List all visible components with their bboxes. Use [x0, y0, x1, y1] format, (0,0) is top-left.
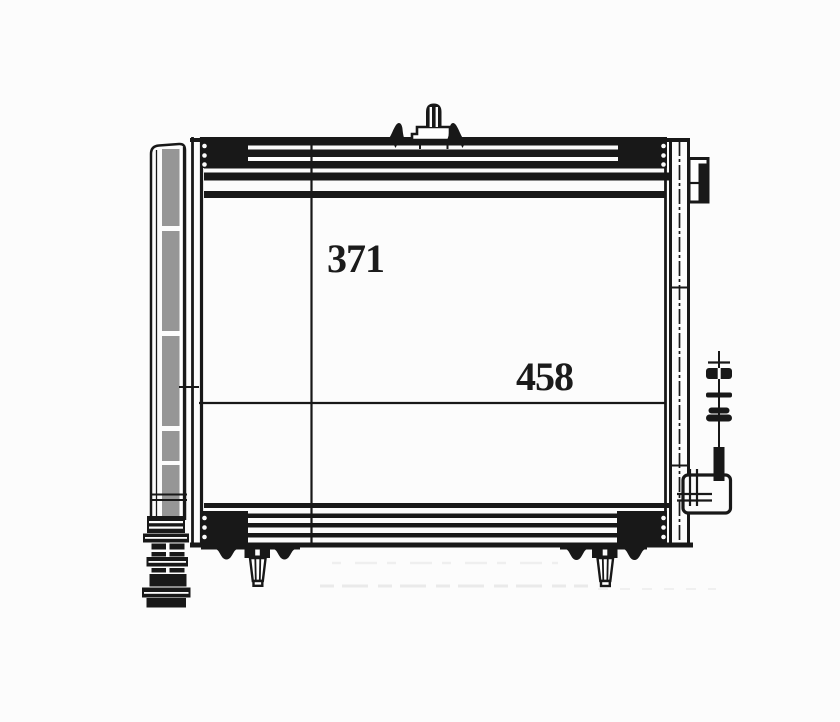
- condenser-drawing-page: 371 458: [0, 0, 840, 722]
- mount-screw-assembly: [706, 351, 732, 481]
- top-header-tank: [190, 137, 690, 198]
- dimension-label-width: 458: [516, 354, 573, 399]
- side-frames: [193, 137, 666, 547]
- bottom-header-tank: [190, 503, 693, 545]
- condenser-technical-drawing: 371 458: [0, 0, 840, 722]
- dimension-lines: [199, 140, 666, 546]
- artifact-streaks: [320, 563, 716, 589]
- receiver-bottom-fitting: [142, 516, 191, 608]
- mounting-pins: [201, 543, 647, 586]
- upper-mount-bracket: [689, 159, 708, 203]
- dimension-label-height: 371: [327, 236, 384, 281]
